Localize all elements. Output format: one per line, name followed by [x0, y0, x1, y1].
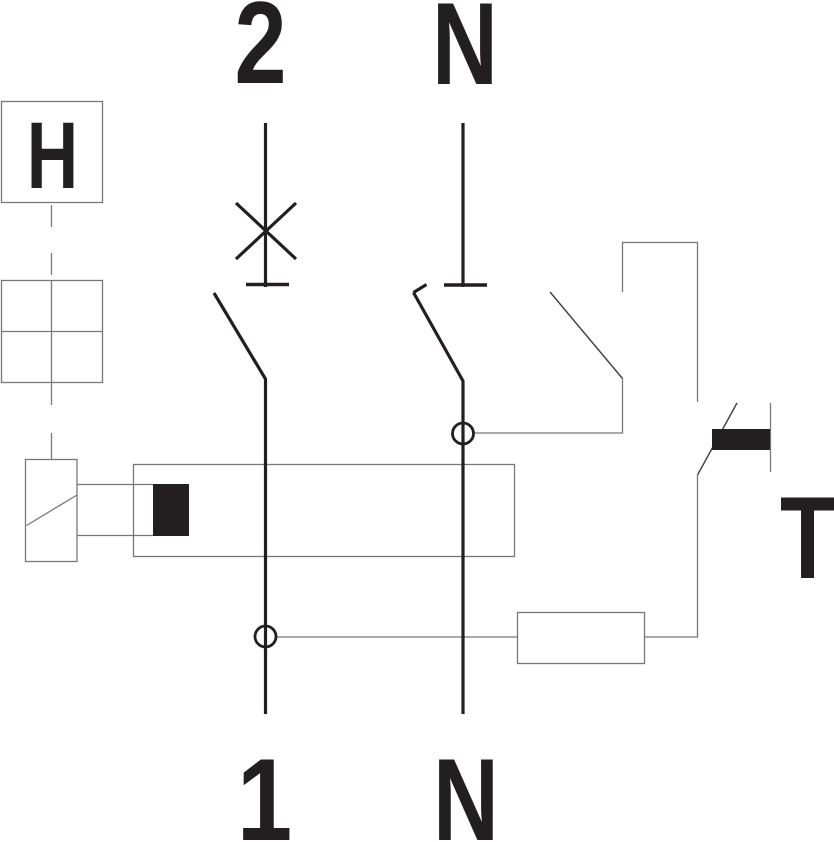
test-loop-top: [623, 243, 698, 403]
handle-indicator-label: H: [27, 102, 78, 208]
neutral-blade-hook: [414, 285, 427, 293]
aux-contact-wire: [474, 379, 623, 434]
test-circuit-lower: [277, 475, 698, 664]
terminal-n-top-label: N: [432, 0, 498, 110]
test-button-label: T: [780, 473, 834, 604]
test-button-cap: [712, 429, 770, 450]
secondary-winding-block: [153, 484, 189, 536]
rcd-aux-contact-blade: [550, 292, 623, 379]
trip-relay-box: [26, 460, 78, 562]
terminal-n-bottom-label: N: [433, 735, 499, 842]
test-resistor: [518, 613, 645, 664]
terminal-2-label: 2: [234, 0, 286, 108]
neutral-blade-and-conductor: [414, 293, 464, 715]
rcbo-wiring-diagram: 2 N 1 N T H: [0, 0, 834, 842]
diagram-canvas: 2 N 1 N T H: [0, 0, 834, 842]
mechanism-grid-lines: [2, 281, 103, 383]
current-transformer: [134, 465, 515, 557]
terminal-1-label: 1: [237, 735, 292, 842]
pole-2-blade-and-conductor: [214, 293, 266, 714]
pole-2-circuit: [214, 123, 296, 714]
neutral-circuit: [414, 123, 488, 714]
trip-relay-diagonal: [27, 495, 78, 526]
relay-winding-wires: [77, 485, 153, 536]
auxiliary-blades: [550, 292, 737, 475]
test-wire-right: [645, 475, 698, 637]
main-poles: [214, 123, 487, 714]
mechanism-grid-box: [2, 281, 103, 383]
thin-linework: [2, 102, 771, 664]
